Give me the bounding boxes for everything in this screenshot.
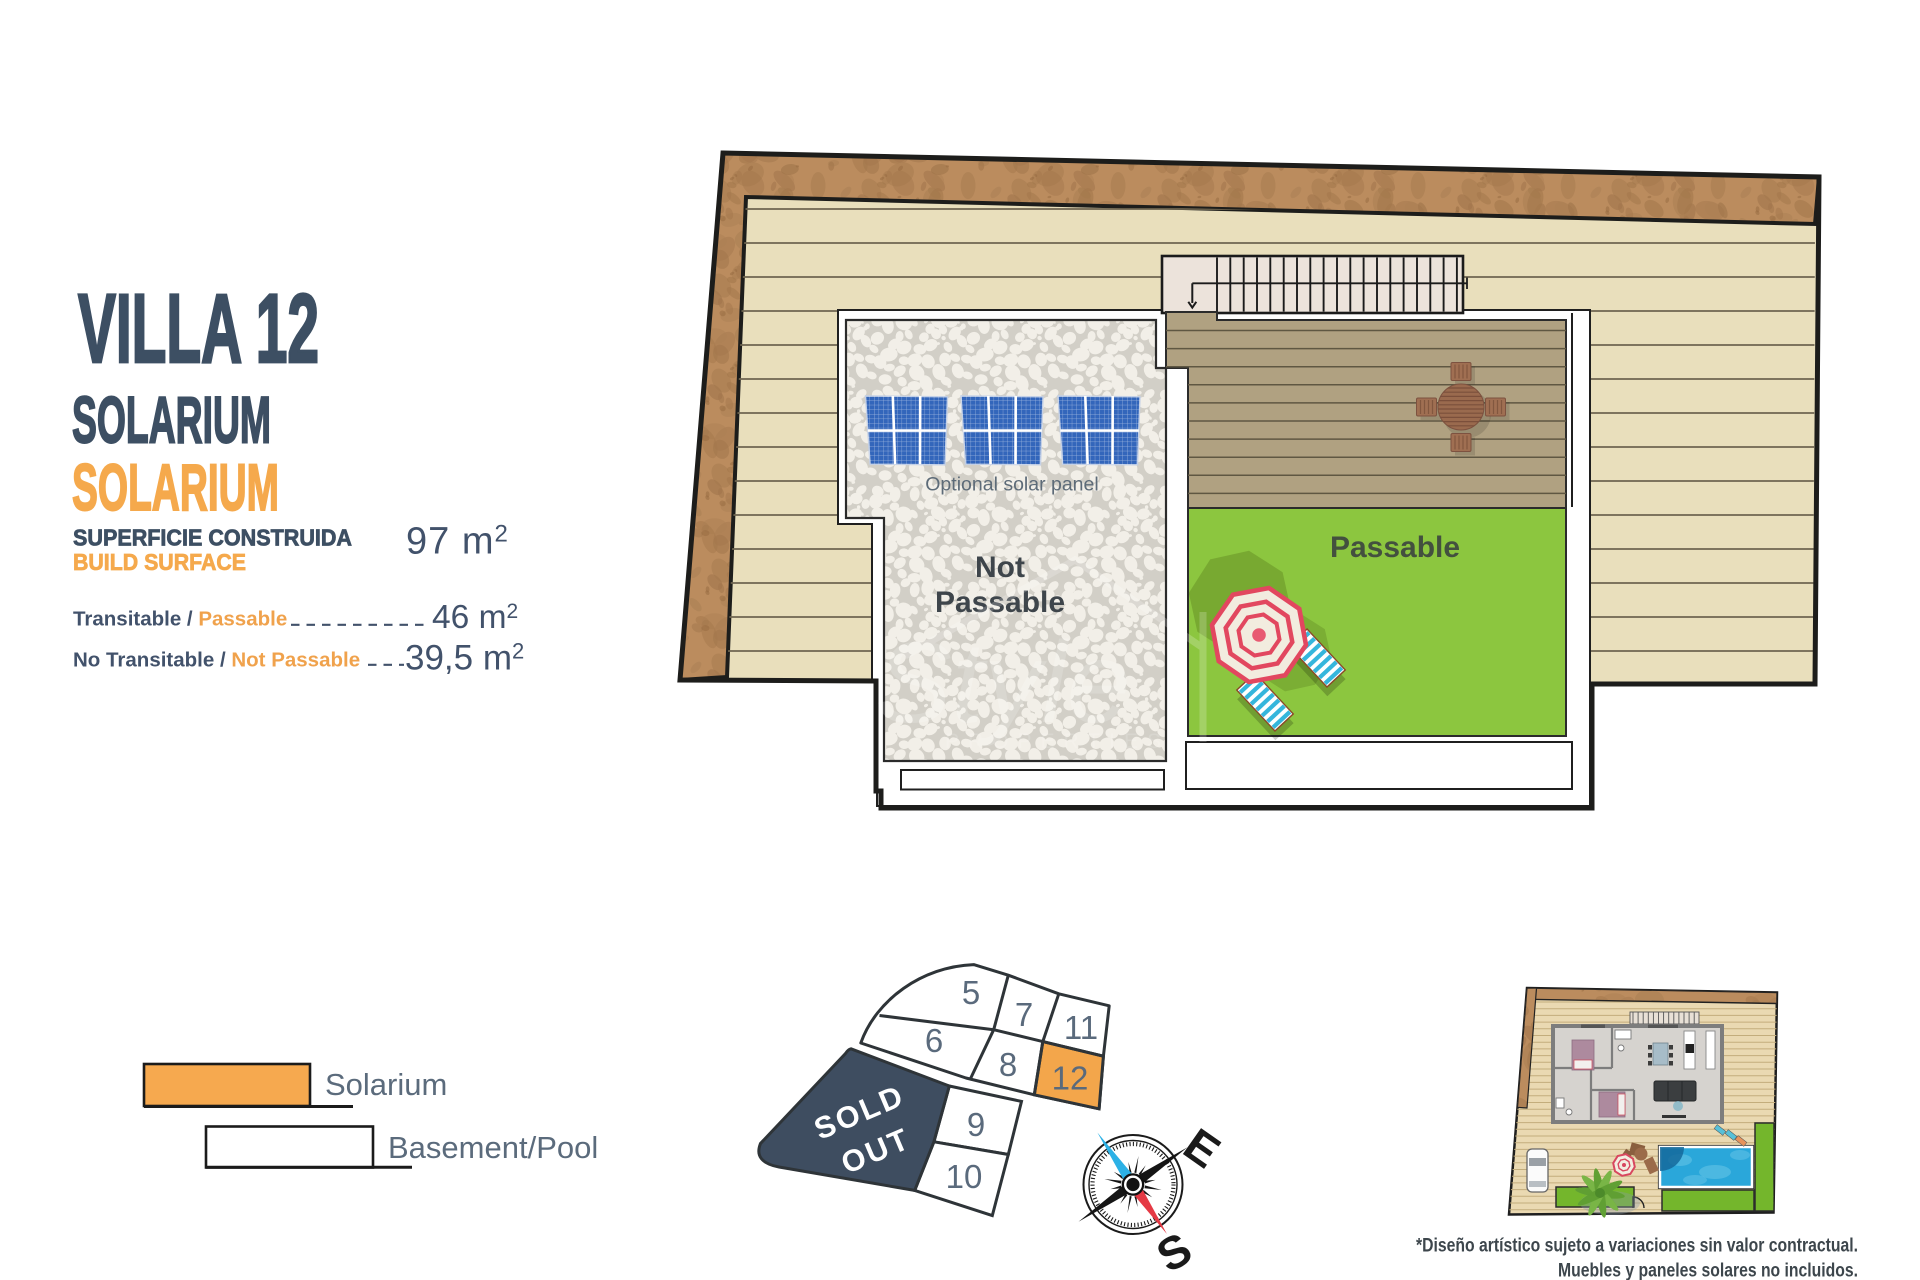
- svg-text:5: 5: [962, 974, 980, 1011]
- svg-text:*Diseño artístico sujeto a var: *Diseño artístico sujeto a variaciones s…: [1416, 1236, 1858, 1257]
- svg-text:11: 11: [1064, 1009, 1098, 1046]
- svg-text:Muebles y paneles solares no i: Muebles y paneles solares no incluidos.: [1558, 1261, 1858, 1280]
- svg-text:Solarium: Solarium: [325, 1067, 447, 1102]
- svg-text:Basement/Pool: Basement/Pool: [388, 1130, 598, 1165]
- svg-text:SUPERFICIE CONSTRUIDA: SUPERFICIE CONSTRUIDA: [73, 525, 352, 551]
- svg-text:Transitable / Passable: Transitable / Passable: [73, 608, 287, 631]
- svg-text:PROPERTIES: PROPERTIES: [945, 730, 1170, 753]
- svg-text:39,5 m2: 39,5 m2: [405, 639, 524, 678]
- svg-text:SOLARIUM: SOLARIUM: [72, 450, 279, 524]
- svg-text:10: 10: [946, 1158, 983, 1195]
- svg-text:E: E: [1175, 1118, 1230, 1178]
- svg-text:Passable: Passable: [1330, 531, 1460, 564]
- svg-text:6: 6: [925, 1022, 943, 1059]
- svg-text:Style: Style: [875, 619, 1131, 747]
- svg-text:46 m2: 46 m2: [432, 599, 518, 636]
- svg-text:8: 8: [999, 1046, 1017, 1083]
- svg-text:12: 12: [1052, 1060, 1089, 1097]
- svg-text:VILLA 12: VILLA 12: [78, 274, 319, 383]
- svg-text:No Transitable / Not Passable: No Transitable / Not Passable: [73, 649, 360, 672]
- svg-text:Not: Not: [975, 551, 1025, 584]
- svg-text:9: 9: [967, 1106, 985, 1143]
- svg-text:7: 7: [1015, 996, 1033, 1033]
- svg-text:97 m2: 97 m2: [406, 521, 509, 563]
- svg-text:Optional solar panel: Optional solar panel: [925, 474, 1098, 496]
- svg-text:BUILD SURFACE: BUILD SURFACE: [73, 549, 246, 575]
- svg-text:S: S: [1148, 1222, 1201, 1280]
- svg-text:SOLARIUM: SOLARIUM: [72, 383, 271, 457]
